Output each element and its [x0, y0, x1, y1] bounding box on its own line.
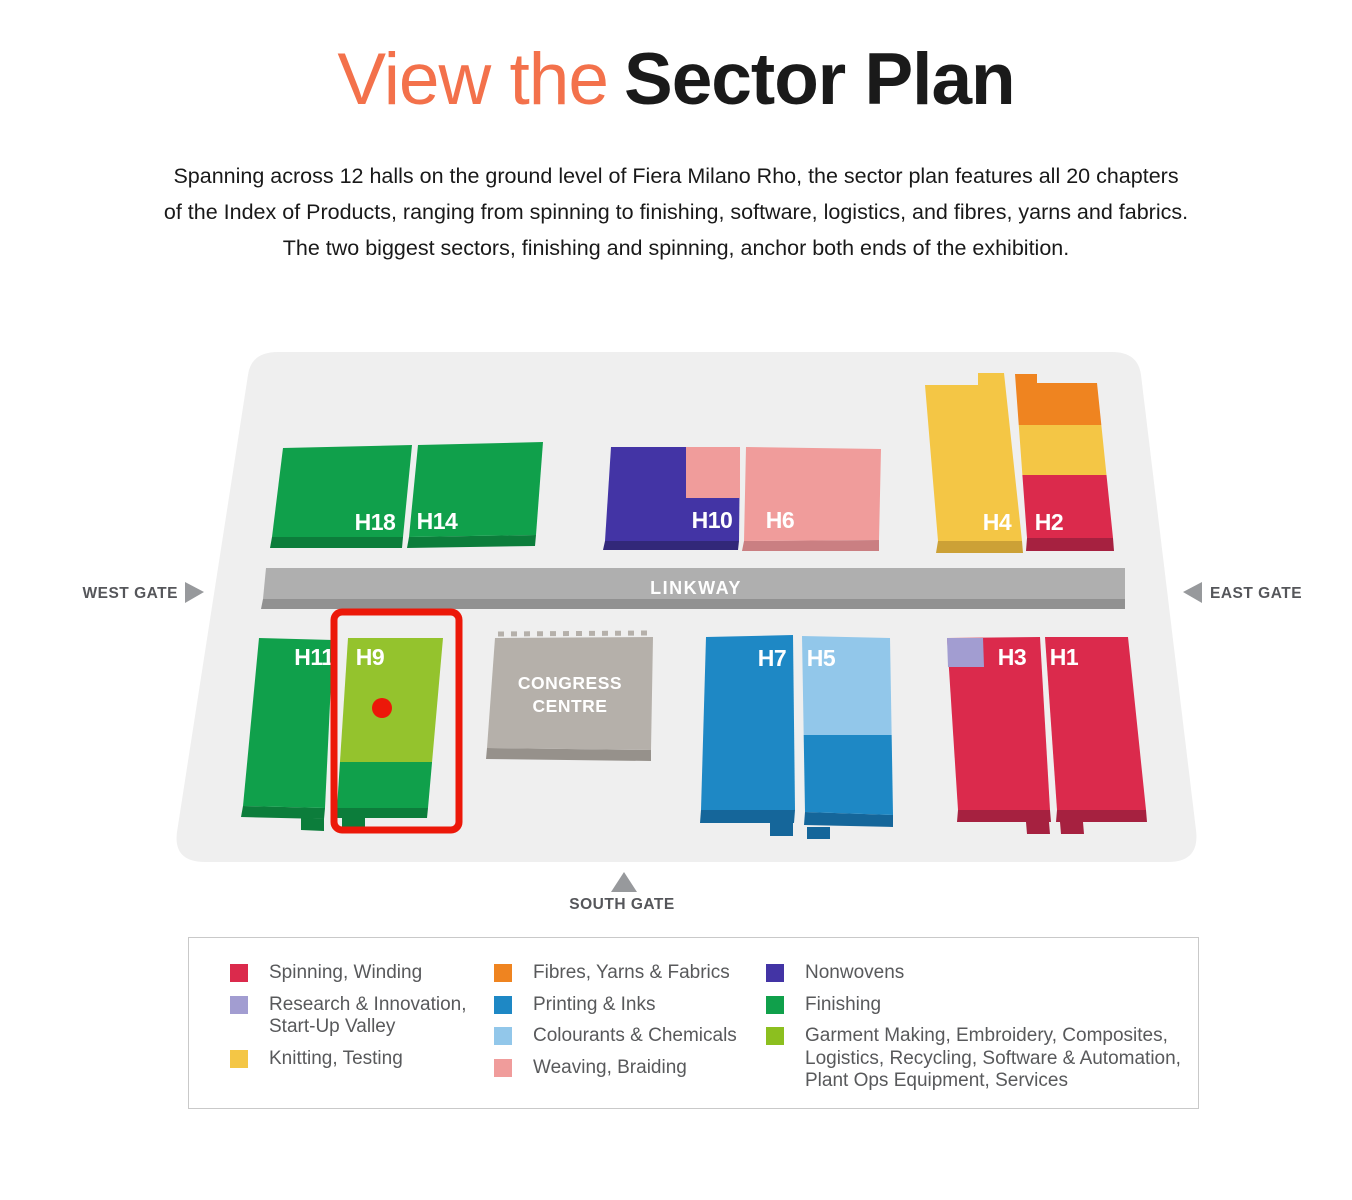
legend-label: Research & Innovation,	[269, 994, 467, 1017]
linkway-edge	[261, 599, 1125, 609]
hall-h10-subzone-weaving	[686, 447, 740, 498]
legend-swatch-colourants-chemicals	[494, 1027, 512, 1045]
legend-label: Logistics, Recycling, Software & Automat…	[805, 1048, 1181, 1071]
legend-item-fibres-yarns-fabrics: Fibres, Yarns & Fabrics	[494, 962, 737, 985]
hall-h10-label: H10	[692, 507, 733, 533]
south-gate: SOUTH GATE	[569, 872, 674, 913]
swatch-square	[230, 996, 248, 1014]
hall-h9-edge	[335, 808, 428, 818]
hall-h3[interactable]: H3	[947, 637, 1051, 834]
linkway-label: LINKWAY	[650, 578, 742, 598]
legend-item-garment-making: Garment Making, Embroidery, Composites, …	[766, 1025, 1181, 1093]
legend-label: Fibres, Yarns & Fabrics	[533, 962, 730, 985]
hall-h14-label: H14	[417, 508, 458, 534]
hall-h7-label: H7	[758, 645, 786, 671]
swatch-square	[230, 1050, 248, 1068]
hall-h2-label: H2	[1035, 509, 1063, 535]
congress-centre-face	[487, 637, 653, 750]
legend-swatch-research-innovation	[230, 996, 248, 1014]
east-gate-arrow-icon	[1183, 582, 1202, 603]
hall-h1-tab	[1060, 822, 1084, 834]
legend-item-colourants-chemicals: Colourants & Chemicals	[494, 1025, 737, 1048]
hall-h14-edge	[407, 535, 536, 548]
swatch-square	[494, 1027, 512, 1045]
congress-centre-label-line2: CENTRE	[533, 696, 608, 716]
congress-centre-edge	[486, 748, 651, 761]
legend-label: Weaving, Braiding	[533, 1057, 687, 1080]
legend-swatch-printing-inks	[494, 996, 512, 1014]
swatch-square	[494, 964, 512, 982]
legend-swatch-garment-making	[766, 1027, 784, 1045]
legend-swatch-knitting-testing	[230, 1050, 248, 1068]
hall-h3-tab	[1026, 822, 1050, 834]
legend-item-weaving-braiding: Weaving, Braiding	[494, 1057, 737, 1080]
hall-h1-label: H1	[1050, 644, 1079, 670]
legend-label: Printing & Inks	[533, 994, 656, 1017]
swatch-square	[766, 996, 784, 1014]
legend-column-1: Spinning, Winding Research & Innovation,…	[230, 962, 467, 1070]
legend-label: Knitting, Testing	[269, 1048, 403, 1071]
congress-centre: CONGRESS CENTRE	[486, 633, 653, 761]
hall-h9-label: H9	[356, 644, 384, 670]
legend-swatch-finishing	[766, 996, 784, 1014]
west-gate-label: WEST GATE	[83, 585, 179, 602]
south-gate-arrow-icon	[611, 872, 637, 892]
hall-h9-band-garment	[330, 630, 450, 762]
swatch-square	[766, 1027, 784, 1045]
hall-h11-edge	[241, 806, 325, 819]
legend-item-printing-inks: Printing & Inks	[494, 994, 737, 1017]
highlight-dot-h9	[372, 698, 392, 718]
west-gate: WEST GATE	[83, 582, 205, 603]
hall-h14[interactable]: H14	[407, 442, 543, 548]
hall-h3-edge	[957, 810, 1051, 822]
south-gate-label: SOUTH GATE	[569, 896, 674, 913]
east-gate-label: EAST GATE	[1210, 585, 1302, 602]
hall-h6-edge	[742, 540, 879, 551]
legend-item-finishing: Finishing	[766, 994, 1181, 1017]
hall-h10[interactable]: H10	[603, 447, 740, 550]
hall-h18[interactable]: H18	[270, 445, 412, 548]
legend-label: Spinning, Winding	[269, 962, 422, 985]
legend-label: Garment Making, Embroidery, Composites,	[805, 1025, 1181, 1048]
swatch-square	[494, 1059, 512, 1077]
west-gate-arrow-icon	[185, 582, 204, 603]
legend-column-2: Fibres, Yarns & Fabrics Printing & Inks …	[494, 962, 737, 1079]
congress-centre-label-line1: CONGRESS	[518, 673, 622, 693]
sector-plan-page: View theSector Plan Spanning across 12 h…	[0, 0, 1352, 1200]
east-gate: EAST GATE	[1183, 582, 1302, 603]
hall-h7-edge	[700, 810, 795, 823]
legend-swatch-fibres-yarns-fabrics	[494, 964, 512, 982]
hall-h1-edge	[1056, 810, 1147, 822]
legend-item-spinning-winding: Spinning, Winding	[230, 962, 467, 985]
legend-item-research-innovation: Research & Innovation, Start-Up Valley	[230, 994, 467, 1039]
swatch-square	[494, 996, 512, 1014]
hall-h5[interactable]: H5	[795, 630, 900, 839]
legend-label: Colourants & Chemicals	[533, 1025, 737, 1048]
legend-label: Finishing	[805, 994, 881, 1017]
legend-swatch-spinning-winding	[230, 964, 248, 982]
legend-panel: Spinning, Winding Research & Innovation,…	[188, 937, 1199, 1109]
hall-h6-label: H6	[766, 507, 794, 533]
hall-h6-face	[744, 447, 881, 541]
hall-h5-band-printing	[795, 735, 900, 820]
hall-h3-label: H3	[998, 644, 1026, 670]
legend-item-nonwovens: Nonwovens	[766, 962, 1181, 985]
swatch-square	[230, 964, 248, 982]
legend-label: Start-Up Valley	[269, 1016, 467, 1039]
hall-h7[interactable]: H7	[700, 635, 795, 836]
legend-column-3: Nonwovens Finishing Garment Making, Embr…	[766, 962, 1181, 1093]
linkway-bar: LINKWAY	[261, 568, 1125, 609]
swatch-square	[766, 964, 784, 982]
hall-h18-edge	[270, 537, 403, 548]
hall-h7-tab	[770, 823, 793, 836]
hall-h6[interactable]: H6	[742, 447, 881, 551]
hall-h3-subzone-research	[947, 638, 984, 667]
sector-plan-map: LINKWAY H18 H14 H10 H6 H4	[0, 0, 1352, 930]
hall-h11-tab	[301, 818, 324, 831]
hall-h4-label: H4	[983, 509, 1012, 535]
hall-h4-edge	[936, 541, 1023, 553]
legend-label: Nonwovens	[805, 962, 904, 985]
legend-swatch-weaving-braiding	[494, 1059, 512, 1077]
hall-h5-tab	[807, 827, 830, 839]
legend-item-knitting-testing: Knitting, Testing	[230, 1048, 467, 1071]
hall-h2-edge	[1026, 538, 1114, 551]
hall-h18-label: H18	[355, 509, 396, 535]
legend-swatch-nonwovens	[766, 964, 784, 982]
legend-label: Plant Ops Equipment, Services	[805, 1070, 1181, 1093]
hall-h5-label: H5	[807, 645, 836, 671]
hall-h10-edge	[603, 541, 739, 550]
hall-h11-label: H11	[294, 644, 334, 670]
